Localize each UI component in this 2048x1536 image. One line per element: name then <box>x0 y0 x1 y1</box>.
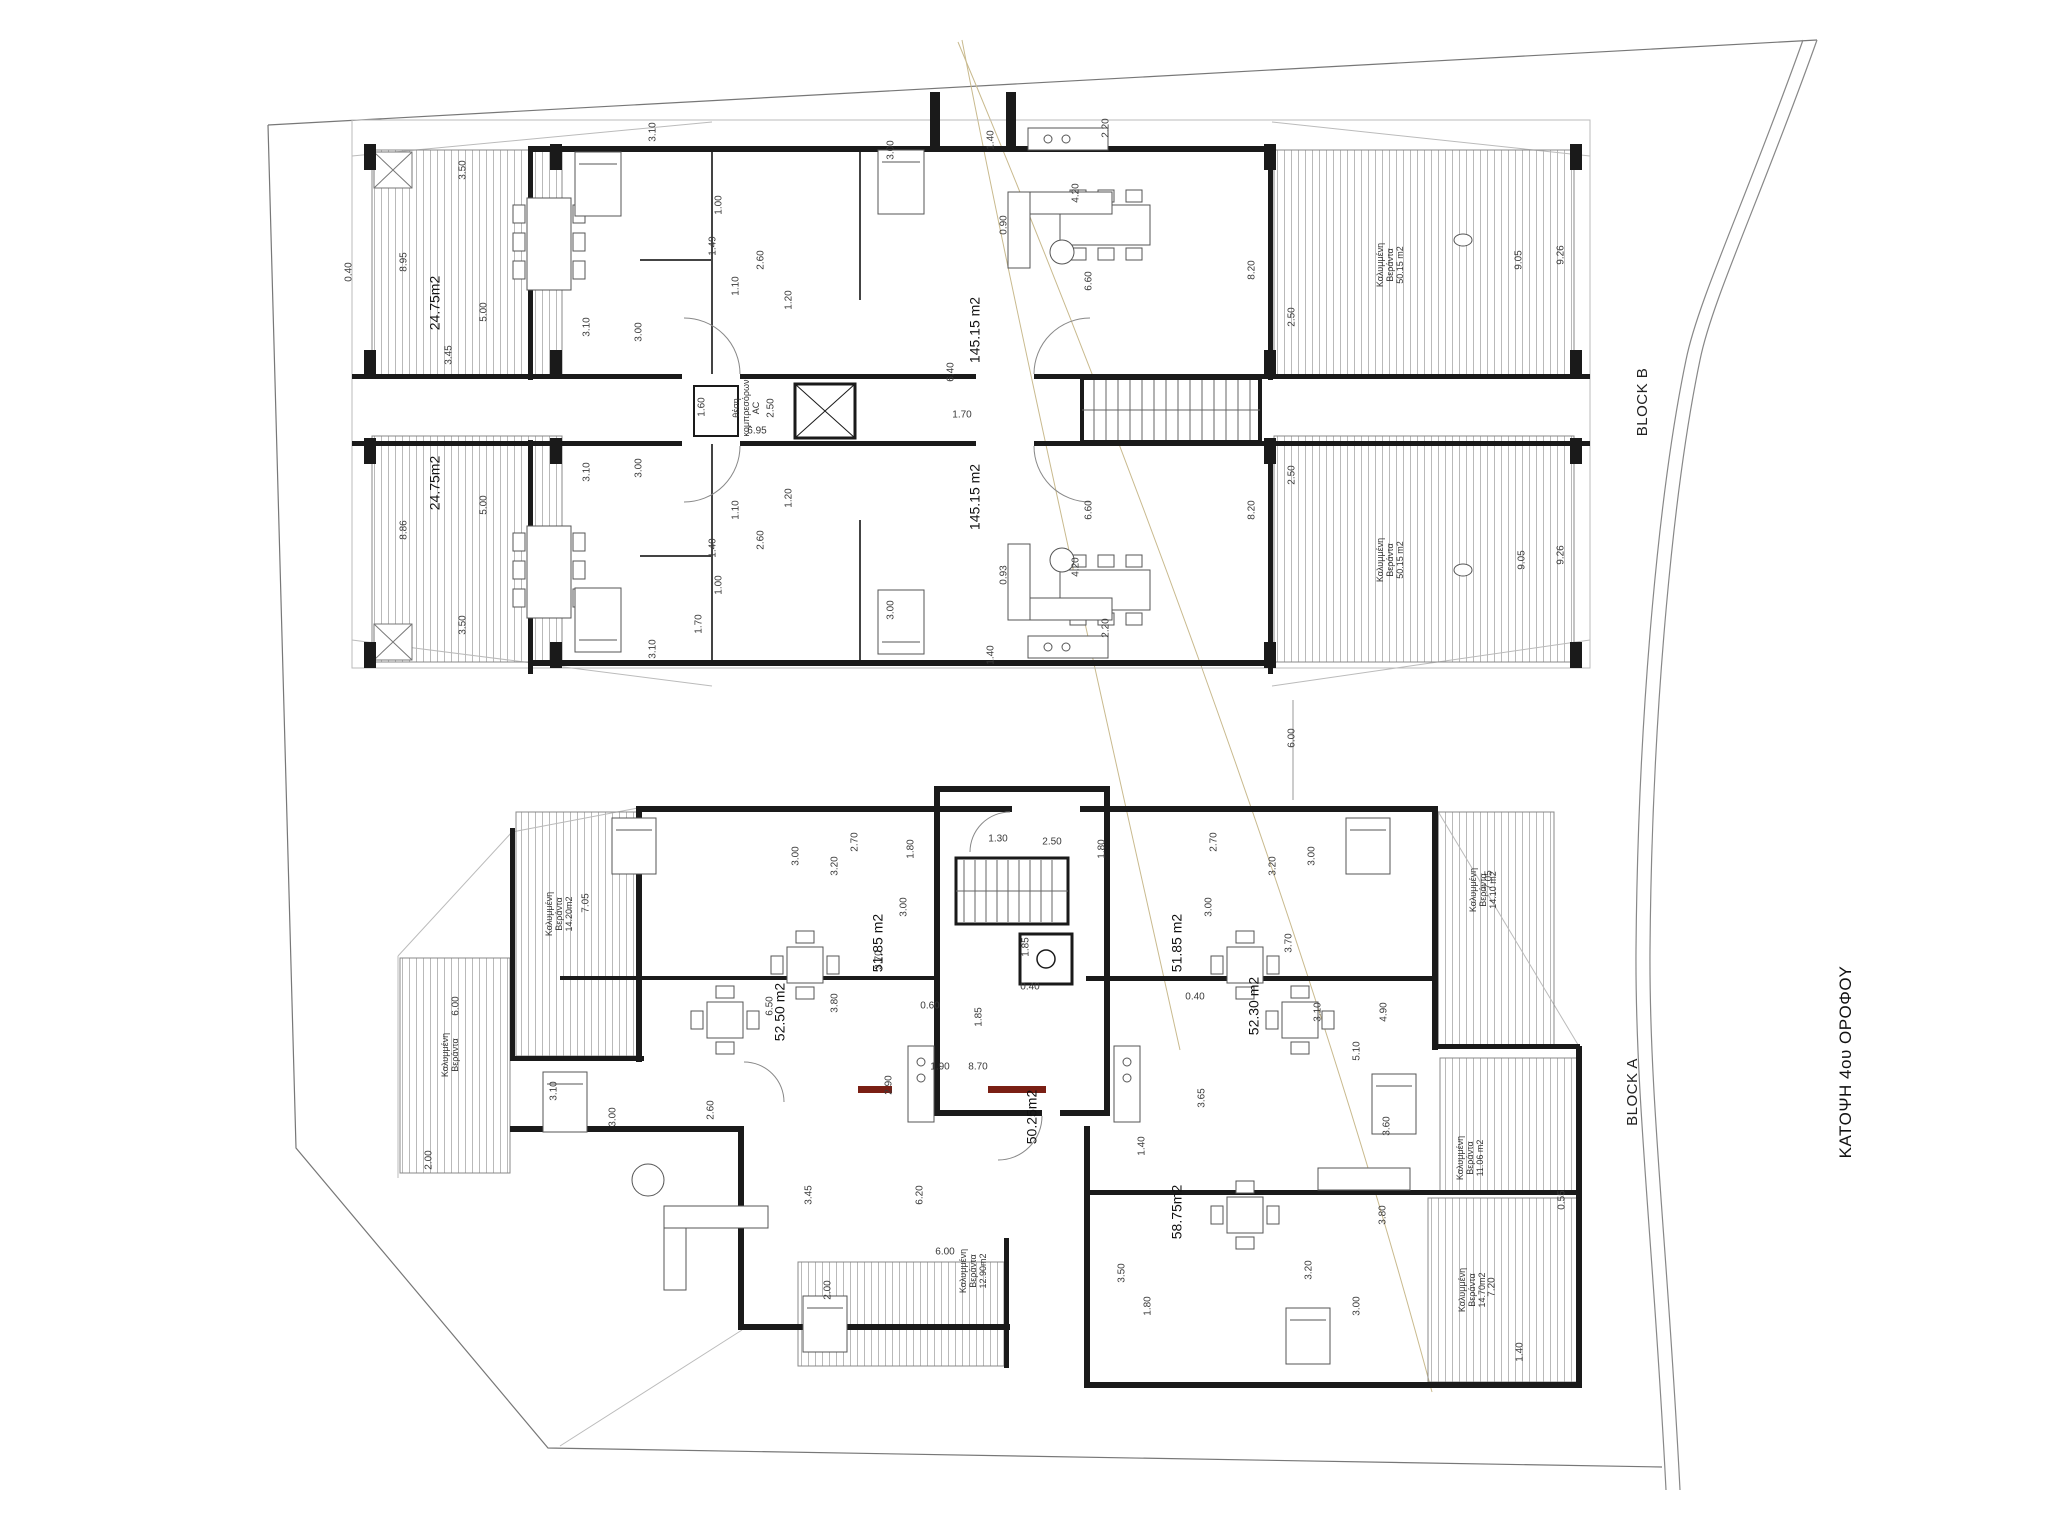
dimension-label: 1.80 <box>1144 1296 1155 1315</box>
dimension-label: 9.05 <box>1518 550 1529 569</box>
dimension-label: 1.49 <box>709 236 720 255</box>
annotations-layer: 0.408.955.003.453.503.103.003.103.001.00… <box>0 0 2048 1536</box>
dimension-label: 1.40 <box>1138 1136 1149 1155</box>
dimension-label: 2.60 <box>707 1100 718 1119</box>
dimension-label: 1.60 <box>698 397 709 416</box>
apartment-area-label: 145.15 m2 <box>967 464 982 530</box>
dimension-label: 6.40 <box>947 362 958 381</box>
dimension-label: 3.00 <box>900 897 911 916</box>
dimension-label: 2.70 <box>851 832 862 851</box>
dimension-label: 1.90 <box>930 1063 949 1074</box>
dimension-label: 3.00 <box>1308 846 1319 865</box>
veranda-label: Καλυμμένη Βεράντα <box>440 1033 460 1077</box>
dimension-label: 2.70 <box>1210 832 1221 851</box>
dimension-label: 1.10 <box>732 276 743 295</box>
dimension-label: 1.80 <box>907 839 918 858</box>
dimension-label: 8.20 <box>1248 260 1259 279</box>
dimension-label: 1.20 <box>785 488 796 507</box>
dimension-label: 6.60 <box>1085 271 1096 290</box>
veranda-label: Καλυμμένη Βεράντα 11.06 m2 <box>1455 1136 1485 1180</box>
dimension-label: 1.10 <box>732 500 743 519</box>
veranda-label: Καλυμμένη Βεράντα 14.20m2 <box>544 892 574 936</box>
dimension-label: 6.20 <box>916 1185 927 1204</box>
dimension-label: 0.40 <box>1185 993 1204 1004</box>
dimension-label: 6.00 <box>1288 728 1299 747</box>
apartment-area-label: 52.50 m2 <box>772 983 787 1041</box>
block-a-title: BLOCK A <box>1625 1058 1641 1126</box>
dimension-label: 7.05 <box>582 893 593 912</box>
dimension-label: 0.40 <box>1020 983 1039 994</box>
sheet-title: ΚΑΤΟΨΗ 4ου ΟΡΟΦΟΥ <box>1837 966 1855 1159</box>
veranda-label: Καλυμμένη Βεράντα 12.90m2 <box>958 1249 988 1293</box>
dimension-label: 3.20 <box>1269 856 1280 875</box>
dimension-label: 2.00 <box>425 1150 436 1169</box>
dimension-label: 3.00 <box>887 600 898 619</box>
dimension-label: 3.10 <box>1314 1002 1325 1021</box>
dimension-label: 0.93 <box>1000 565 1011 584</box>
dimension-label: 3.10 <box>649 639 660 658</box>
dimension-label: 3.00 <box>792 846 803 865</box>
dimension-label: 2.20 <box>1102 618 1113 637</box>
dimension-label: 1.85 <box>975 1007 986 1026</box>
dimension-label: 2.00 <box>824 1280 835 1299</box>
dimension-label: 1.00 <box>715 575 726 594</box>
dimension-label: 3.00 <box>1353 1296 1364 1315</box>
dimension-label: 3.10 <box>583 317 594 336</box>
dimension-label: 2.90 <box>885 1075 896 1094</box>
dimension-label: 6.60 <box>1085 500 1096 519</box>
dimension-label: 1.40 <box>709 538 720 557</box>
dimension-label: 2.60 <box>757 530 768 549</box>
dimension-label: 3.20 <box>1305 1260 1316 1279</box>
dimension-label: 0.60 <box>920 1002 939 1013</box>
dimension-label: 8.20 <box>1248 500 1259 519</box>
dimension-label: 2.60 <box>757 250 768 269</box>
dimension-label: 1.85 <box>1022 937 1033 956</box>
dimension-label: 3.60 <box>1383 1116 1394 1135</box>
dimension-label: 6.00 <box>935 1248 954 1259</box>
dimension-label: 3.65 <box>1198 1088 1209 1107</box>
dimension-label: 4.90 <box>1380 1002 1391 1021</box>
dimension-label: 5.00 <box>480 495 491 514</box>
dimension-label: 1.40 <box>1516 1342 1527 1361</box>
dimension-label: 3.50 <box>1118 1263 1129 1282</box>
dimension-label: 2.50 <box>767 398 778 417</box>
dimension-label: 1.70 <box>695 614 706 633</box>
dimension-label: 6.00 <box>452 996 463 1015</box>
dimension-label: 3.00 <box>887 140 898 159</box>
apartment-area-label: 24.75m2 <box>427 276 442 330</box>
dimension-label: 0.90 <box>1000 215 1011 234</box>
dimension-label: 1.20 <box>785 290 796 309</box>
dimension-label: 1.30 <box>988 835 1007 846</box>
dimension-label: 3.10 <box>583 462 594 481</box>
dimension-label: 3.50 <box>459 615 470 634</box>
dimension-label: 3.45 <box>805 1185 816 1204</box>
dimension-label: 2.20 <box>1102 118 1113 137</box>
dimension-label: 0.55 <box>1558 1190 1569 1209</box>
apartment-area-label: 52.30 m2 <box>1246 977 1261 1035</box>
dimension-label: 1.00 <box>715 195 726 214</box>
apartment-area-label: 24.75m2 <box>427 456 442 510</box>
floorplan-sheet: 0.408.955.003.453.503.103.003.103.001.00… <box>0 0 2048 1536</box>
veranda-label: Καλυμμένη Βεράντα 14.10 m2 <box>1468 868 1498 912</box>
dimension-label: 5.10 <box>1353 1041 1364 1060</box>
dimension-label: 3.00 <box>1205 897 1216 916</box>
apartment-area-label: 51.85 m2 <box>870 914 885 972</box>
dimension-label: 3.10 <box>550 1081 561 1100</box>
dimension-label: 3.80 <box>831 993 842 1012</box>
dimension-label: 5.00 <box>480 302 491 321</box>
dimension-label: 8.70 <box>968 1063 987 1074</box>
dimension-label: 1.40 <box>987 645 998 664</box>
apartment-area-label: 51.85 m2 <box>1169 914 1184 972</box>
dimension-label: 1.80 <box>1098 839 1109 858</box>
dimension-label: 1.70 <box>952 411 971 422</box>
dimension-label: 4.20 <box>1072 557 1083 576</box>
dimension-label: 9.26 <box>1557 245 1568 264</box>
dimension-label: 3.50 <box>459 160 470 179</box>
dimension-label: 9.26 <box>1557 545 1568 564</box>
dimension-label: 3.80 <box>1379 1205 1390 1224</box>
dimension-label: 3.20 <box>831 856 842 875</box>
dimension-label: 8.95 <box>400 252 411 271</box>
dimension-label: 8.86 <box>400 520 411 539</box>
veranda-label: Καλυμμένη Βεράντα 50.15 m2 <box>1375 243 1405 287</box>
dimension-label: 3.00 <box>609 1107 620 1126</box>
apartment-area-label: 58.75m2 <box>1169 1185 1184 1239</box>
dimension-label: 3.00 <box>635 322 646 341</box>
dimension-label: 3.70 <box>1285 933 1296 952</box>
ac-compressor-note: θέση κομπρεσόρων AC <box>731 379 761 436</box>
dimension-label: 4.20 <box>1072 183 1083 202</box>
dimension-label: 2.50 <box>1042 838 1061 849</box>
veranda-label: Καλυμμένη Βεράντα 14.70m2 <box>1457 1268 1487 1312</box>
apartment-area-label: 50.25m2 <box>1024 1090 1039 1144</box>
dimension-label: 9.05 <box>1515 250 1526 269</box>
dimension-label: 1.40 <box>987 130 998 149</box>
veranda-label: Καλυμμένη Βεράντα 50.15 m2 <box>1375 538 1405 582</box>
dimension-label: 3.00 <box>635 458 646 477</box>
apartment-area-label: 145.15 m2 <box>967 297 982 363</box>
dimension-label: 0.40 <box>345 262 356 281</box>
dimension-label: 3.10 <box>649 122 660 141</box>
dimension-label: 3.45 <box>445 345 456 364</box>
dimension-label: 7.20 <box>1488 1277 1499 1296</box>
block-b-title: BLOCK B <box>1635 368 1651 437</box>
dimension-label: 2.50 <box>1288 307 1299 326</box>
dimension-label: 2.50 <box>1288 465 1299 484</box>
